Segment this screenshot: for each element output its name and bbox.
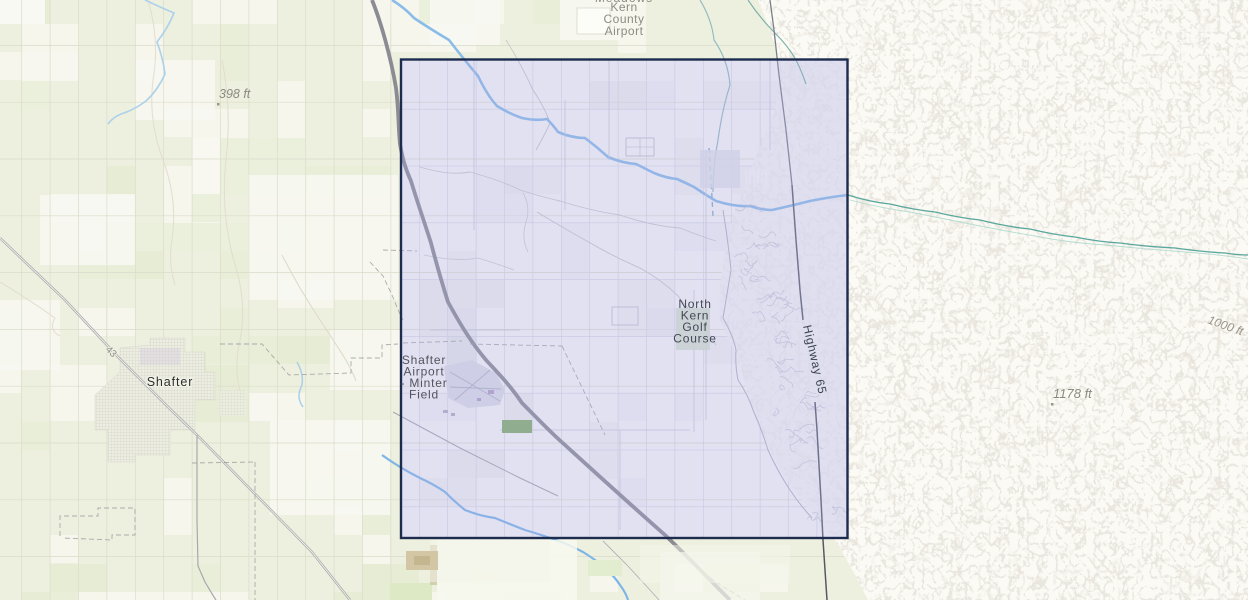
svg-text:Airport: Airport (605, 24, 644, 38)
svg-text:Field: Field (409, 388, 439, 402)
svg-text:Course: Course (673, 332, 716, 346)
svg-text:Shafter: Shafter (147, 375, 194, 389)
svg-text:1178 ft: 1178 ft (1053, 386, 1093, 401)
svg-text:398 ft: 398 ft (219, 87, 251, 101)
